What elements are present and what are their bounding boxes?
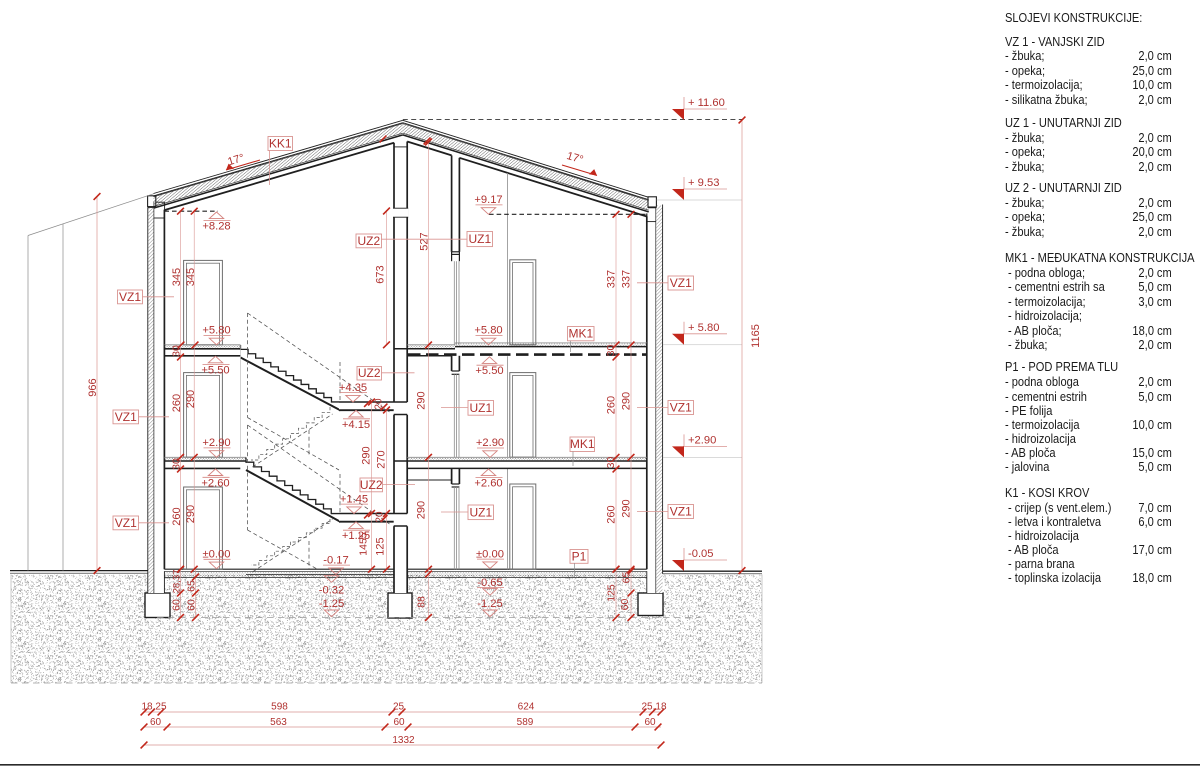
svg-text:337: 337 <box>606 270 618 288</box>
svg-text:30: 30 <box>605 345 617 357</box>
svg-text:28,37: 28,37 <box>172 570 183 594</box>
svg-text:125: 125 <box>375 537 387 555</box>
svg-text:+4.35: +4.35 <box>339 382 367 394</box>
svg-text:+2.90: +2.90 <box>688 434 716 446</box>
svg-text:+5.80: +5.80 <box>202 325 230 337</box>
svg-text:+ 5.80: + 5.80 <box>688 322 719 334</box>
svg-text:-1.25: -1.25 <box>477 598 503 610</box>
svg-text:+2.60: +2.60 <box>201 477 229 489</box>
svg-text:290: 290 <box>621 499 633 517</box>
svg-text:-0.65: -0.65 <box>477 577 503 589</box>
svg-text:UZ2: UZ2 <box>358 366 381 380</box>
svg-text:+5.50: +5.50 <box>475 365 503 377</box>
svg-text:+ 11.60: + 11.60 <box>688 97 725 109</box>
svg-text:673: 673 <box>375 265 387 283</box>
svg-text:VZ1: VZ1 <box>670 276 692 290</box>
svg-text:30: 30 <box>171 345 183 357</box>
svg-text:260: 260 <box>606 505 618 523</box>
svg-text:+4.15: +4.15 <box>342 419 370 431</box>
svg-text:345: 345 <box>185 268 197 286</box>
svg-text:527: 527 <box>419 232 431 250</box>
svg-text:P1: P1 <box>572 549 587 563</box>
svg-text:30: 30 <box>605 457 617 469</box>
svg-text:+2.90: +2.90 <box>202 437 230 449</box>
svg-text:UZ2: UZ2 <box>360 478 383 492</box>
svg-text:60: 60 <box>644 717 656 728</box>
svg-text:598: 598 <box>271 702 288 713</box>
svg-text:±0.00: ±0.00 <box>476 548 504 560</box>
svg-text:563: 563 <box>270 717 287 728</box>
svg-text:20: 20 <box>374 398 385 410</box>
svg-text:±0.00: ±0.00 <box>203 549 231 561</box>
svg-text:966: 966 <box>87 378 99 396</box>
svg-text:UZ1: UZ1 <box>468 232 491 246</box>
svg-text:+ 9.53: + 9.53 <box>688 177 719 189</box>
svg-text:589: 589 <box>517 717 534 728</box>
svg-text:+1.45: +1.45 <box>340 493 368 505</box>
svg-text:1165: 1165 <box>750 324 762 348</box>
svg-text:VZ1: VZ1 <box>115 410 137 424</box>
svg-text:260: 260 <box>171 394 183 412</box>
svg-text:UZ1: UZ1 <box>469 505 492 519</box>
svg-text:+8.28: +8.28 <box>202 220 230 232</box>
svg-text:VZ1: VZ1 <box>670 505 692 519</box>
svg-text:337: 337 <box>621 270 633 288</box>
svg-text:60: 60 <box>619 599 631 611</box>
svg-text:18,25: 18,25 <box>141 702 166 713</box>
svg-text:+2.60: +2.60 <box>474 477 502 489</box>
svg-text:+2.90: +2.90 <box>476 437 504 449</box>
svg-text:VZ1: VZ1 <box>115 516 137 530</box>
svg-text:-0.32: -0.32 <box>319 585 345 597</box>
svg-text:UZ1: UZ1 <box>469 401 492 415</box>
svg-text:MK1: MK1 <box>568 327 593 341</box>
svg-text:290: 290 <box>416 501 428 519</box>
svg-text:MK1: MK1 <box>570 437 595 451</box>
svg-text:KK1: KK1 <box>269 137 292 151</box>
svg-text:+9.17: +9.17 <box>474 194 502 206</box>
svg-text:UZ2: UZ2 <box>357 234 380 248</box>
svg-text:65: 65 <box>621 572 633 584</box>
svg-text:25,18: 25,18 <box>641 702 666 713</box>
svg-text:60: 60 <box>186 599 198 611</box>
svg-text:65: 65 <box>186 580 198 592</box>
svg-text:20: 20 <box>375 511 386 523</box>
svg-text:345: 345 <box>171 268 183 286</box>
svg-text:60: 60 <box>393 717 405 728</box>
svg-text:60: 60 <box>150 717 162 728</box>
svg-text:290: 290 <box>416 391 428 409</box>
svg-text:290: 290 <box>185 505 197 523</box>
svg-text:VZ1: VZ1 <box>670 401 692 415</box>
svg-text:-0.17: -0.17 <box>323 554 349 566</box>
svg-text:-0.05: -0.05 <box>688 548 714 560</box>
svg-text:624: 624 <box>518 702 535 713</box>
svg-text:290: 290 <box>185 390 197 408</box>
svg-text:88: 88 <box>416 596 428 608</box>
svg-text:30: 30 <box>171 458 183 470</box>
svg-text:290: 290 <box>621 392 633 410</box>
svg-text:260: 260 <box>606 396 618 414</box>
svg-text:60: 60 <box>171 599 183 611</box>
svg-text:270: 270 <box>376 450 388 468</box>
svg-text:1332: 1332 <box>392 735 415 746</box>
svg-text:260: 260 <box>171 507 183 525</box>
svg-text:-1.25: -1.25 <box>319 598 345 610</box>
svg-text:25: 25 <box>393 702 405 713</box>
svg-text:290: 290 <box>361 446 373 464</box>
svg-text:125: 125 <box>606 584 618 602</box>
svg-text:VZ1: VZ1 <box>119 290 141 304</box>
svg-text:+1.25: +1.25 <box>342 530 370 542</box>
svg-text:+5.80: +5.80 <box>474 325 502 337</box>
svg-text:+5.50: +5.50 <box>201 365 229 377</box>
